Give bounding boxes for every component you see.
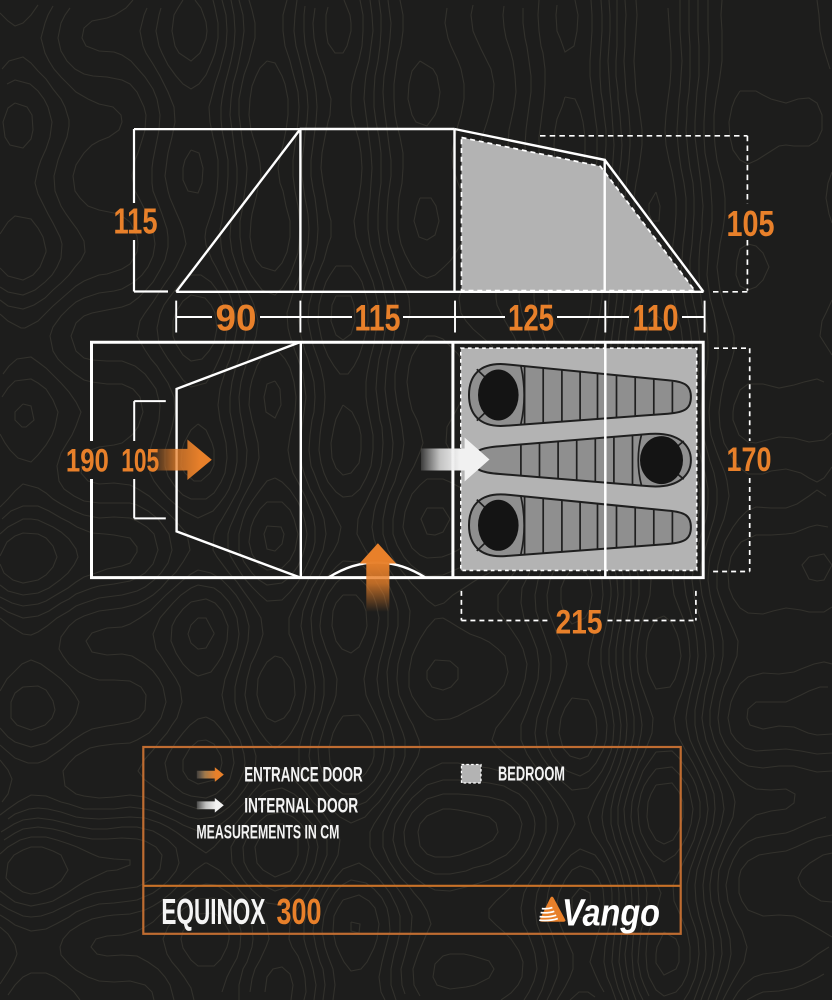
svg-text:125: 125	[508, 297, 554, 338]
svg-text:Vango: Vango	[562, 893, 660, 935]
svg-text:215: 215	[556, 604, 603, 642]
svg-text:300: 300	[277, 891, 322, 932]
svg-text:110: 110	[633, 297, 679, 338]
svg-text:170: 170	[727, 441, 772, 479]
svg-text:ENTRANCE DOOR: ENTRANCE DOOR	[244, 763, 363, 787]
svg-text:MEASUREMENTS IN CM: MEASUREMENTS IN CM	[196, 822, 339, 844]
svg-text:190: 190	[66, 443, 109, 479]
svg-text:115: 115	[114, 200, 158, 241]
svg-text:BEDROOM: BEDROOM	[498, 763, 565, 786]
svg-text:105: 105	[727, 203, 775, 244]
svg-text:INTERNAL DOOR: INTERNAL DOOR	[244, 794, 358, 818]
svg-text:90: 90	[216, 297, 257, 338]
svg-text:EQUINOX: EQUINOX	[161, 891, 265, 932]
svg-text:115: 115	[355, 297, 401, 338]
